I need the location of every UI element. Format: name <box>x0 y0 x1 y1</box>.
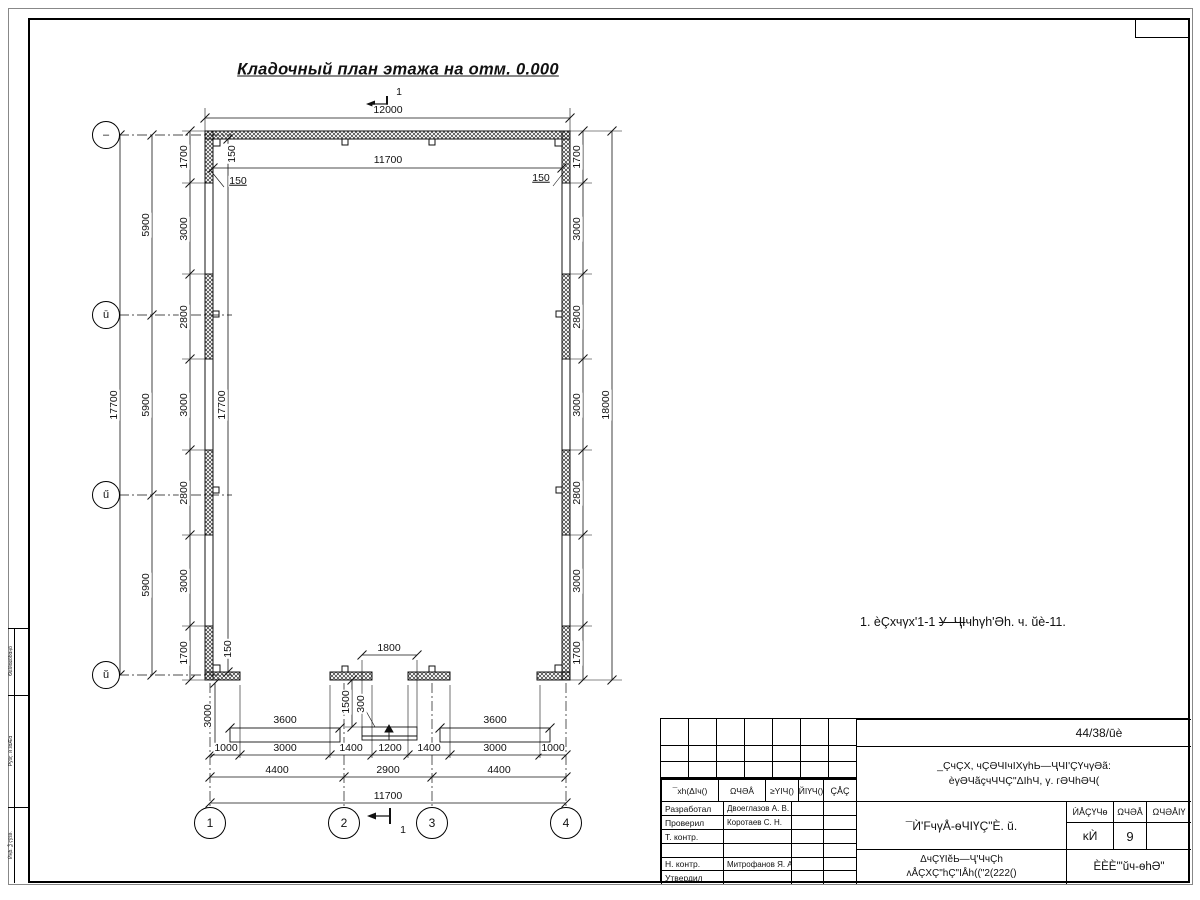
dim-label: 3000 <box>203 703 214 728</box>
dim-label: 300 <box>356 694 367 714</box>
revision-grid <box>661 719 856 779</box>
rev-cell <box>717 719 744 745</box>
sig-cell <box>791 843 823 857</box>
rev-cell <box>829 719 856 745</box>
role-label: Т. контр. <box>661 829 723 843</box>
date-cell <box>823 857 856 870</box>
sig-cell <box>791 801 823 815</box>
drawing-title-cell: ¯Ѝ'FчγÅ-ѳЧIҮÇ"È. ŭ. <box>856 801 1066 849</box>
sig-cell <box>791 815 823 829</box>
dim-label: 2800 <box>179 480 190 505</box>
role-name <box>723 829 791 843</box>
stage-value: ĸЍ <box>1066 822 1113 849</box>
rev-header: ÇÅÇ <box>823 779 856 801</box>
axis-bubble: 3 <box>416 807 448 839</box>
axis-bubble: ű <box>92 481 120 509</box>
dim-label: 12000 <box>372 105 403 116</box>
dim-label: 3000 <box>179 568 190 593</box>
dim-label: 1 <box>395 87 403 98</box>
sheet-header: ΩЧӘÅ <box>1113 801 1146 822</box>
dim-label: 4400 <box>264 765 289 776</box>
date-cell <box>823 843 856 857</box>
dim-label: 3000 <box>179 216 190 241</box>
rev-cell <box>801 746 828 761</box>
dim-label: 1000 <box>540 743 565 754</box>
role-label: Проверил <box>661 815 723 829</box>
date-cell <box>823 870 856 884</box>
rev-cell <box>829 746 856 761</box>
rev-cell <box>661 746 688 761</box>
drawing-sheet: ѲɕӀӣɑɕӧɓɑӊӧҎӯӟҁ. ѝ ӟɑӔɑЍӊɓ. Ѯ ҁӯӟӛ. <box>0 0 1200 900</box>
dim-label: 150 <box>531 173 551 184</box>
role-label: Разработал <box>661 801 723 815</box>
rev-header: ≥YIЧ() <box>765 779 798 801</box>
rev-cell <box>717 746 744 761</box>
rev-cell <box>717 762 744 777</box>
dim-label: 3000 <box>572 392 583 417</box>
dim-label: 1700 <box>572 144 583 169</box>
dim-label: 3000 <box>572 216 583 241</box>
dim-label: 11700 <box>373 791 403 802</box>
role-name: Двоеглазов А. В. <box>723 801 791 815</box>
dim-label: 3600 <box>272 715 297 726</box>
org-cell: ΔчÇҮIĕЬ—Ҷ'ЧчÇh ʌÅÇХÇ"hÇ"IÅh(("2(222() <box>856 849 1066 884</box>
rev-cell <box>829 762 856 777</box>
axis-bubble: ŭ <box>92 661 120 689</box>
axis-bubble: 1 <box>194 807 226 839</box>
sheets-total <box>1146 822 1191 849</box>
entry-arrow <box>385 725 393 732</box>
dim-label: 5900 <box>141 212 152 237</box>
stage-header: ЍÅÇҮЧѳ <box>1066 801 1113 822</box>
dim-label: 5900 <box>141 572 152 597</box>
dim-label: 2800 <box>179 304 190 329</box>
rev-cell <box>745 762 772 777</box>
dim-label: 1400 <box>338 743 363 754</box>
rev-cell <box>745 746 772 761</box>
sig-cell <box>791 870 823 884</box>
date-cell <box>823 801 856 815</box>
rev-cell <box>661 719 688 745</box>
axis-bubble: 2 <box>328 807 360 839</box>
walls <box>205 131 570 680</box>
rev-cell <box>661 762 688 777</box>
role-label: Утвердил <box>661 870 723 884</box>
dim-label: 150 <box>227 144 238 164</box>
dim-label: 2900 <box>375 765 400 776</box>
rev-cell <box>689 746 716 761</box>
rev-cell <box>773 719 800 745</box>
dim-label: 2800 <box>572 480 583 505</box>
dim-label: 1 <box>399 825 407 836</box>
dim-label: 3000 <box>272 743 297 754</box>
date-cell <box>823 829 856 843</box>
dim-label: 3000 <box>179 392 190 417</box>
rev-header: ¯хh(ΔIч() <box>661 779 718 801</box>
rev-cell <box>773 762 800 777</box>
dim-label: 1500 <box>341 689 352 714</box>
role-label: Н. контр. <box>661 857 723 870</box>
plan-title: Кладочный план этажа на отм. 0.000 <box>237 61 559 80</box>
dim-label: 2800 <box>572 304 583 329</box>
axis-bubble: ū <box>92 301 120 329</box>
sig-cell <box>791 857 823 870</box>
axis-bubble: – <box>92 121 120 149</box>
role-name: Митрофанов Я. А. <box>723 857 791 870</box>
role-name <box>723 870 791 884</box>
doc-number: 44/38/ūè <box>856 719 1191 746</box>
dim-label: 1800 <box>376 643 401 654</box>
role-label <box>661 843 723 857</box>
role-name: Коротаев С. Н. <box>723 815 791 829</box>
note-text: 1. èÇхчγх'1-1 У–ҶIчhγh'Әh. ч. ŭè-11. <box>860 615 1066 629</box>
rev-header: ΩЧӘÅ <box>718 779 765 801</box>
sheets-header: ΩЧӘÅIҮ <box>1146 801 1191 822</box>
dim-label: 4400 <box>486 765 511 776</box>
rev-cell <box>689 762 716 777</box>
company-cell: ÈÈÈ'"ŭч-ѳhӘ" <box>1066 849 1191 884</box>
rev-cell <box>773 746 800 761</box>
dim-label: 1000 <box>213 743 238 754</box>
sig-cell <box>791 829 823 843</box>
rev-header: ЙIҮЧ() <box>798 779 823 801</box>
sheet-number: 9 <box>1113 822 1146 849</box>
ramps <box>230 725 550 742</box>
dim-label: 18000 <box>601 389 612 420</box>
dim-label: 3000 <box>572 568 583 593</box>
dim-label: 11700 <box>373 155 403 166</box>
dim-label: 5900 <box>141 392 152 417</box>
dim-label: 1200 <box>377 743 402 754</box>
dim-label: 3600 <box>482 715 507 726</box>
dim-label: 1700 <box>179 640 190 665</box>
rev-cell <box>801 719 828 745</box>
rev-cell <box>689 719 716 745</box>
role-name <box>723 843 791 857</box>
dim-label: 1700 <box>572 640 583 665</box>
rev-cell <box>801 762 828 777</box>
project-name: _ÇчÇХ, чÇӘЧIчIХγhЬ—ҶЧI'ÇҮчγӘã: èγӘЧãçчЧЧ… <box>856 746 1191 801</box>
dim-label: 17700 <box>217 389 228 420</box>
dim-label: 1400 <box>416 743 441 754</box>
dim-label: 3000 <box>482 743 507 754</box>
dim-label: 150 <box>223 639 234 659</box>
rev-cell <box>745 719 772 745</box>
section-marks <box>366 96 390 824</box>
title-block: ¯хh(ΔIч() ΩЧӘÅ ≥YIЧ() ЙIҮЧ() ÇÅÇ Разрабо… <box>660 718 1190 883</box>
date-cell <box>823 815 856 829</box>
dim-label: 1700 <box>179 144 190 169</box>
axis-bubble: 4 <box>550 807 582 839</box>
dim-label: 17700 <box>109 389 120 420</box>
dim-label: 150 <box>228 176 248 187</box>
